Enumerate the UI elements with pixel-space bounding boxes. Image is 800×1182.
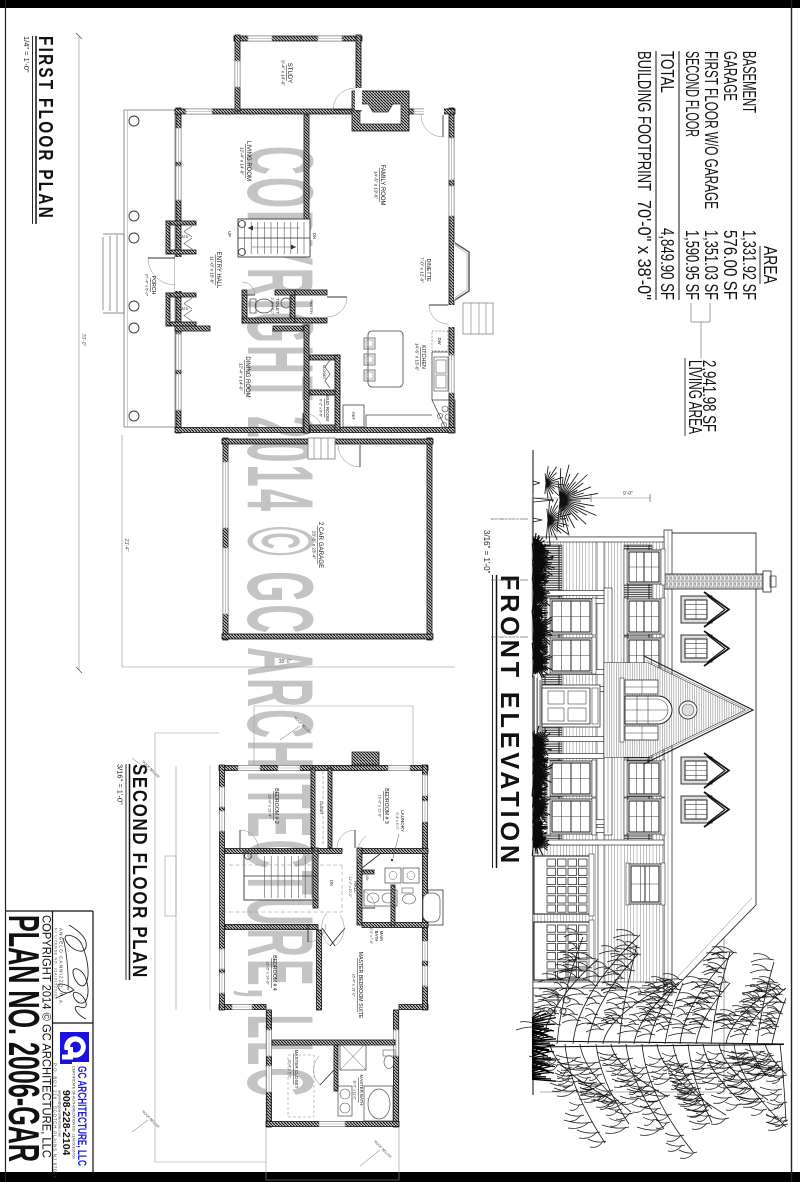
svg-text:11'-0" x 11'-0": 11'-0" x 11'-0" bbox=[353, 1080, 357, 1099]
svg-text:HALL: HALL bbox=[353, 881, 358, 893]
svg-text:FAMILY ROOM: FAMILY ROOM bbox=[379, 164, 385, 205]
svg-text:7'-0" x 12'-0": 7'-0" x 12'-0" bbox=[420, 257, 425, 283]
svg-text:BEDROOM # 4: BEDROOM # 4 bbox=[271, 955, 277, 991]
svg-text:4,849.90 SF: 4,849.90 SF bbox=[657, 228, 677, 300]
svg-text:TOILET: TOILET bbox=[275, 298, 280, 314]
svg-text:10'-6" x 7'-0": 10'-6" x 7'-0" bbox=[288, 1060, 292, 1080]
svg-text:37'-4" x 6'-0": 37'-4" x 6'-0" bbox=[145, 274, 150, 297]
svg-text:MASTER BATH: MASTER BATH bbox=[359, 1075, 364, 1106]
svg-text:COPYRIGHT 2014 © GC ARCHITECTU: COPYRIGHT 2014 © GC ARCHITECTURE, LLC bbox=[227, 146, 331, 1098]
svg-text:FIRST FLOOR SUBFLOOR: FIRST FLOOR SUBFLOOR bbox=[490, 635, 528, 639]
svg-text:14'-6" x 13'-6": 14'-6" x 13'-6" bbox=[415, 343, 420, 372]
svg-text:12'-0" x 11'-0": 12'-0" x 11'-0" bbox=[378, 794, 382, 818]
svg-text:CLOSET: CLOSET bbox=[319, 801, 323, 815]
svg-text:6'-2" x 9'-6": 6'-2" x 9'-6" bbox=[319, 399, 323, 418]
svg-text:1,590.95 SF: 1,590.95 SF bbox=[682, 230, 702, 300]
svg-text:MASTER CLOSET: MASTER CLOSET bbox=[294, 1050, 299, 1089]
svg-text:COPYRIGHT 2014 © GC ARCHITECTU: COPYRIGHT 2014 © GC ARCHITECTURE, LLC bbox=[40, 915, 52, 1158]
svg-text:UP: UP bbox=[227, 231, 232, 237]
svg-text:NJ LICENSE NO. 21AI01529200: NJ LICENSE NO. 21AI01529200 bbox=[54, 928, 58, 999]
svg-text:SECOND FLOOR PLAN: SECOND FLOOR PLAN bbox=[128, 764, 150, 979]
svg-text:DN: DN bbox=[312, 233, 317, 239]
svg-text:12'-6" x 14'-6": 12'-6" x 14'-6" bbox=[266, 961, 270, 985]
svg-text:1/4" = 1'-0": 1/4" = 1'-0" bbox=[22, 36, 31, 73]
svg-text:3/16" = 1'-0": 3/16" = 1'-0" bbox=[482, 530, 491, 574]
svg-text:FIRST FLOOR W/O GARAGE: FIRST FLOOR W/O GARAGE bbox=[701, 51, 721, 209]
svg-text:70'-0": 70'-0" bbox=[80, 334, 86, 347]
svg-text:PORCH: PORCH bbox=[150, 276, 156, 295]
svg-text:38'-0": 38'-0" bbox=[279, 659, 292, 665]
svg-text:ANGELO CANNIZZO, R.A.: ANGELO CANNIZZO, R.A. bbox=[59, 928, 64, 1007]
svg-text:KITCHEN: KITCHEN bbox=[420, 345, 426, 369]
svg-text:COATS: COATS bbox=[176, 307, 189, 311]
svg-text:PANTRY: PANTRY bbox=[309, 299, 313, 315]
svg-text:5'-4" x 6'-0": 5'-4" x 6'-0" bbox=[395, 812, 399, 830]
svg-text:MUD ROOM: MUD ROOM bbox=[325, 395, 330, 421]
svg-text:MASTER BEDROOM SUITE: MASTER BEDROOM SUITE bbox=[357, 952, 363, 1019]
svg-text:LIVING AREA: LIVING AREA bbox=[685, 360, 705, 434]
svg-text:BATH: BATH bbox=[374, 931, 379, 942]
svg-text:FIRST FLOOR SUBFLOOR: FIRST FLOOR SUBFLOOR bbox=[490, 578, 528, 582]
svg-text:12'-0" x 12'-4": 12'-0" x 12'-4" bbox=[268, 794, 272, 818]
svg-text:REF: REF bbox=[351, 412, 356, 421]
svg-text:TOTAL: TOTAL bbox=[657, 51, 677, 93]
svg-text:FRONT ELEVATION: FRONT ELEVATION bbox=[495, 575, 525, 867]
svg-text:1,351.03 SF: 1,351.03 SF bbox=[701, 230, 721, 300]
svg-text:9'-4" x 14'-0": 9'-4" x 14'-0" bbox=[281, 60, 286, 86]
svg-text:DINETTE: DINETTE bbox=[425, 258, 431, 281]
svg-text:P.O. BOX 218 . SCOTCH PLAINS N: P.O. BOX 218 . SCOTCH PLAINS NJ 07076 bbox=[53, 1063, 58, 1179]
svg-text:GARAGE: GARAGE bbox=[720, 51, 740, 101]
svg-text:LIVING ROOM: LIVING ROOM bbox=[245, 141, 251, 181]
svg-text:SECOND FLOOR: SECOND FLOOR bbox=[682, 51, 702, 137]
svg-text:1,331.92 SF: 1,331.92 SF bbox=[739, 230, 759, 300]
svg-text:ENTRY HALL: ENTRY HALL bbox=[215, 252, 221, 289]
svg-text:DN: DN bbox=[329, 880, 334, 886]
svg-text:9'-0": 9'-0" bbox=[623, 491, 633, 497]
svg-text:COATS: COATS bbox=[176, 235, 189, 239]
svg-text:11'-0" x 15'-6": 11'-0" x 15'-6" bbox=[210, 256, 215, 284]
svg-text:DW: DW bbox=[437, 338, 442, 345]
svg-text:2 CAR GARAGE: 2 CAR GARAGE bbox=[317, 522, 324, 568]
svg-text:3/16" = 1'-0": 3/16" = 1'-0" bbox=[116, 764, 125, 805]
svg-text:LIN: LIN bbox=[365, 876, 369, 882]
svg-text:BUILDING FOOTPRINT: BUILDING FOOTPRINT bbox=[634, 51, 654, 191]
svg-text:16'-4" x 19'-0": 16'-4" x 19'-0" bbox=[352, 973, 356, 997]
svg-text:23'-8" x 23'-4": 23'-8" x 23'-4" bbox=[312, 531, 317, 560]
svg-text:9'-0" x 7'-6": 9'-0" x 7'-6" bbox=[369, 928, 373, 944]
svg-text:AREA: AREA bbox=[760, 246, 780, 284]
svg-text:576.00 SF: 576.00 SF bbox=[720, 230, 740, 300]
svg-text:GC ARCHITECTURE, LLC: GC ARCHITECTURE, LLC bbox=[75, 1066, 87, 1166]
svg-text:LAUNDRY: LAUNDRY bbox=[400, 810, 405, 832]
svg-text:BEDROOM # 2: BEDROOM # 2 bbox=[273, 788, 279, 824]
svg-text:FIRST FLOOR SUBFLOOR: FIRST FLOOR SUBFLOOR bbox=[490, 517, 528, 521]
svg-text:12'-4" x 14'-8": 12'-4" x 14'-8" bbox=[240, 147, 245, 176]
svg-text:14'-6" x 19'-6": 14'-6" x 19'-6" bbox=[374, 171, 379, 200]
svg-text:23'-4": 23'-4" bbox=[123, 539, 129, 552]
svg-text:BASEMENT: BASEMENT bbox=[739, 51, 759, 113]
svg-text:12'-4" x 14'-6": 12'-4" x 14'-6" bbox=[239, 363, 244, 392]
svg-text:2'-4" x 7'-0": 2'-4" x 7'-0" bbox=[270, 297, 274, 315]
svg-text:11'-0" x 20'-0": 11'-0" x 20'-0" bbox=[348, 877, 352, 898]
svg-text:70'-0" x 38'-0": 70'-0" x 38'-0" bbox=[634, 200, 654, 300]
svg-text:FIRST FLOOR PLAN: FIRST FLOOR PLAN bbox=[34, 36, 56, 220]
svg-text:DINING ROOM: DINING ROOM bbox=[244, 356, 250, 397]
svg-text:BEDROOM # 3: BEDROOM # 3 bbox=[383, 788, 389, 824]
svg-text:STUDY: STUDY bbox=[286, 63, 292, 83]
